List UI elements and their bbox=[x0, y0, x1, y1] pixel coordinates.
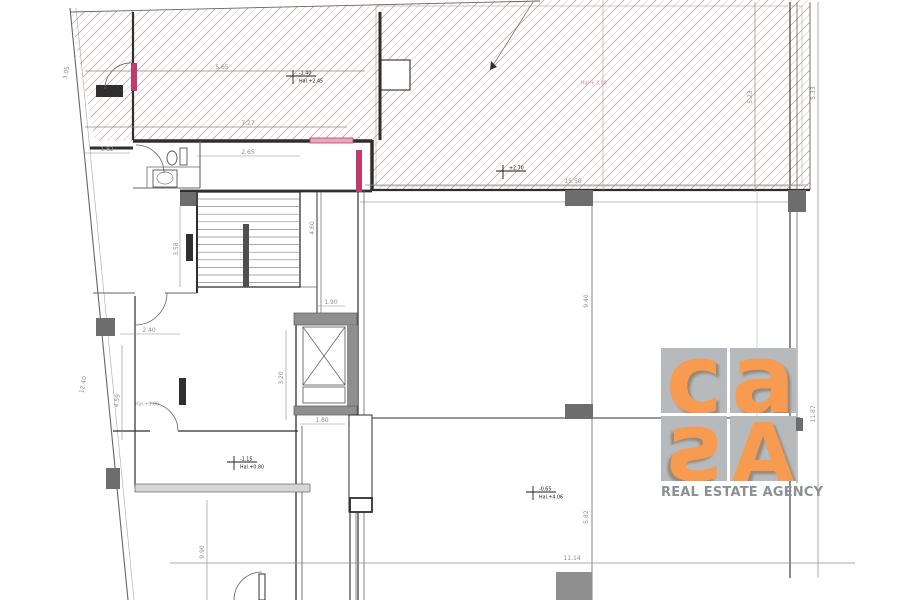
casa-logo-grid: c a s A bbox=[661, 348, 801, 481]
sink-icon bbox=[153, 170, 177, 187]
dimension-label: 2.65 bbox=[241, 149, 255, 156]
plan-path bbox=[135, 293, 167, 325]
logo-square-A: A bbox=[730, 416, 796, 481]
plan-rect bbox=[131, 63, 137, 91]
plan-rect bbox=[350, 498, 372, 512]
dimension-label: 4.59 bbox=[113, 394, 122, 408]
logo-letter-s-mirrored: s bbox=[666, 416, 723, 481]
dimension-label: 3.05 bbox=[62, 65, 71, 80]
plan-rect bbox=[381, 60, 410, 90]
logo-tagline: REAL ESTATE AGENCY bbox=[661, 485, 801, 500]
level-height: Hal.+0.80 bbox=[240, 465, 264, 471]
logo-letter-a: a bbox=[731, 348, 795, 413]
plan-rect bbox=[179, 378, 186, 405]
plan-rect bbox=[356, 150, 362, 192]
logo-square-a: a bbox=[730, 348, 796, 413]
level-value: Hal.+0.80 bbox=[135, 402, 159, 408]
dimension-label: 1.90 bbox=[324, 299, 338, 306]
plan-rect bbox=[294, 406, 357, 415]
plan-rect bbox=[788, 190, 806, 212]
level-value: Hal + 3.00 bbox=[581, 81, 607, 87]
dimension-label: 1.80 bbox=[315, 417, 329, 424]
dimension-label: 3.20 bbox=[278, 371, 285, 385]
plan-rect bbox=[106, 468, 120, 489]
logo-square-c: c bbox=[661, 348, 727, 413]
level-value: -0.65 bbox=[539, 487, 551, 493]
plan-rect bbox=[303, 387, 345, 403]
dimension-label: 7.27 bbox=[241, 120, 255, 127]
dimension-label: 2.40 bbox=[142, 327, 156, 334]
dimension-label: 12.40 bbox=[79, 375, 89, 393]
level-value: -1.15 bbox=[240, 457, 252, 463]
floor-plan-page: { "canvas": {"w": 900, "h": 600}, "color… bbox=[0, 0, 900, 600]
dimension-label: 1.82 bbox=[100, 146, 114, 153]
plan-rect bbox=[96, 85, 123, 97]
level-value: +2.70 bbox=[509, 166, 524, 172]
level-height: Hal.+2.45 bbox=[299, 79, 323, 85]
floor-plan-svg: 5.657.2715.502.651.821.901.802.4011.144.… bbox=[0, 0, 900, 600]
dimension-label: 5.65 bbox=[215, 64, 229, 71]
plan-rect bbox=[310, 138, 353, 143]
dimension-label: 4.60 bbox=[309, 221, 316, 235]
sink-basin-icon bbox=[157, 172, 173, 184]
dimension-label: 3.58 bbox=[173, 242, 180, 256]
casa-logo: c a s A REAL ESTATE AGENCY bbox=[661, 348, 801, 500]
dimension-label: 15.50 bbox=[564, 178, 581, 185]
logo-square-s: s bbox=[661, 416, 727, 481]
level-value: -1.40 bbox=[299, 71, 311, 77]
plan-path bbox=[136, 145, 164, 173]
toilet-bowl-icon bbox=[167, 151, 177, 165]
dimension-label: 11.14 bbox=[563, 555, 580, 562]
plan-rect bbox=[135, 484, 310, 492]
plan-path bbox=[234, 572, 262, 600]
plan-rect bbox=[556, 572, 592, 600]
dimension-label: 11.87 bbox=[810, 405, 817, 422]
plan-rect bbox=[259, 574, 265, 600]
stair-rail bbox=[243, 224, 249, 287]
toilet-icon bbox=[180, 148, 187, 165]
plan-rect bbox=[347, 325, 357, 407]
dimension-label: 9.40 bbox=[583, 294, 590, 308]
plan-rect bbox=[565, 190, 593, 206]
plan-rect bbox=[565, 404, 593, 419]
plan-rect bbox=[186, 234, 193, 261]
plan-rect bbox=[294, 313, 357, 325]
plan-rect bbox=[96, 318, 115, 336]
dimension-label: 5.33 bbox=[810, 86, 817, 100]
level-height: Hal.+4.06 bbox=[539, 495, 563, 501]
dimension-label: 5.82 bbox=[583, 510, 590, 524]
dimension-label: 5.23 bbox=[747, 90, 754, 104]
logo-letter-A: A bbox=[731, 416, 794, 481]
hatched-area bbox=[70, 0, 810, 190]
dimension-label: 9.90 bbox=[199, 545, 206, 559]
plan-rect bbox=[180, 192, 198, 206]
logo-letter-c: c bbox=[666, 348, 722, 413]
drawing-layer: 5.657.2715.502.651.821.901.802.4011.144.… bbox=[62, 0, 855, 600]
